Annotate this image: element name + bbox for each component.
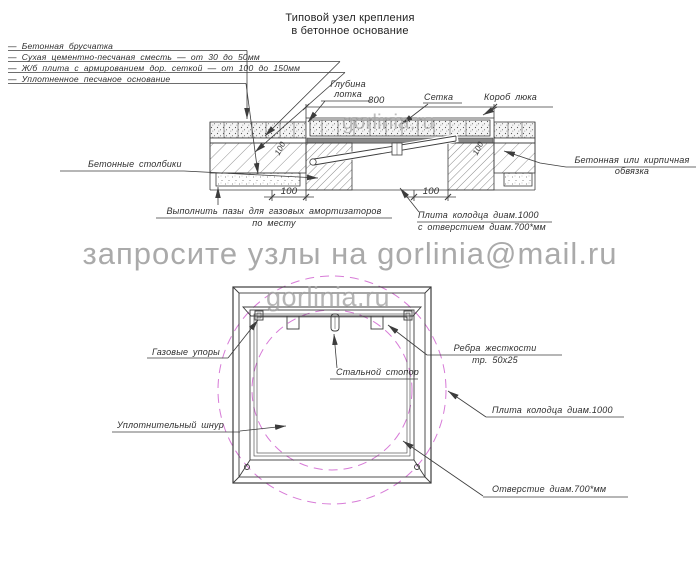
- label-obvyazka: Бетонная или кирпичная обвязка: [566, 155, 698, 177]
- notch-right: [371, 316, 383, 329]
- watermark-site-plan: gorlinia.ru: [266, 282, 390, 313]
- label-stolbiki: Бетонные столбики: [88, 159, 182, 170]
- rebra-line1: Ребра жесткости: [430, 342, 560, 354]
- dim-100-right-text: 100: [419, 186, 443, 197]
- glubina-line2: лотка: [322, 89, 374, 99]
- legend-item-bruschatka: — Бетонная брусчатка: [8, 41, 113, 51]
- label-shnur: Уплотнительный шнур: [117, 420, 224, 431]
- rebra-line2: тр. 50х25: [430, 354, 560, 366]
- cad-drawing-page: gorlinia.ru запросите узлы на gorlinia@m…: [0, 0, 700, 568]
- label-plita-section: Плита колодца диам.1000 с отверстием диа…: [418, 210, 546, 233]
- title-line1: Типовой узел крепления: [270, 12, 430, 25]
- title-line2: в бетонное основание: [270, 25, 430, 38]
- bolt-left: [255, 311, 263, 320]
- plita-section-line1: Плита колодца диам.1000: [418, 210, 546, 222]
- drawing-title: Типовой узел крепления в бетонное основа…: [270, 12, 430, 38]
- korob-leader: [483, 107, 497, 115]
- plita-section-line2: с отверстием диам.700*мм: [418, 222, 546, 234]
- watermark-email: запросите узлы на gorlinia@mail.ru: [25, 236, 675, 272]
- label-stalnoy-stopor: Стальной стопор: [336, 367, 419, 378]
- section-ground-right: [494, 122, 535, 186]
- legend-item-osnovanie: — Уплотненное песчаное основание: [8, 74, 170, 84]
- label-glubina-lotka: Глубина лотка: [322, 79, 374, 99]
- label-otverstie: Отверстие диам.700*мм: [492, 484, 606, 495]
- column-left: [306, 143, 352, 190]
- obvyazka-line1: Бетонная или кирпичная: [566, 155, 698, 166]
- label-pazy: Выполнить пазы для газовых амортизаторов…: [153, 205, 395, 229]
- label-gazovye-upory: Газовые упоры: [152, 347, 220, 358]
- legend-item-plita: — Ж/б плита с армированием дор. сеткой —…: [8, 63, 300, 73]
- obvyazka-line2: обвязка: [566, 166, 698, 177]
- label-plita-plan: Плита колодца диам.1000: [492, 405, 613, 416]
- pazy-line2: по месту: [153, 217, 395, 229]
- legend-item-smes: — Сухая цементно-песчаная сместь — от 30…: [8, 52, 260, 62]
- dim-800-text: 800: [368, 95, 384, 106]
- label-rebra: Ребра жесткости тр. 50х25: [430, 342, 560, 366]
- watermark-site-top: gorlinia.ru: [342, 111, 434, 135]
- glubina-line1: Глубина: [322, 79, 374, 89]
- label-setka: Сетка: [424, 92, 453, 103]
- opening-circle-700: [252, 310, 412, 470]
- pazy-line1: Выполнить пазы для газовых амортизаторов: [153, 205, 395, 217]
- dim-100-left-text: 100: [277, 186, 301, 197]
- bolt-right: [404, 311, 412, 320]
- label-korob-lyuka: Короб люка: [484, 92, 537, 103]
